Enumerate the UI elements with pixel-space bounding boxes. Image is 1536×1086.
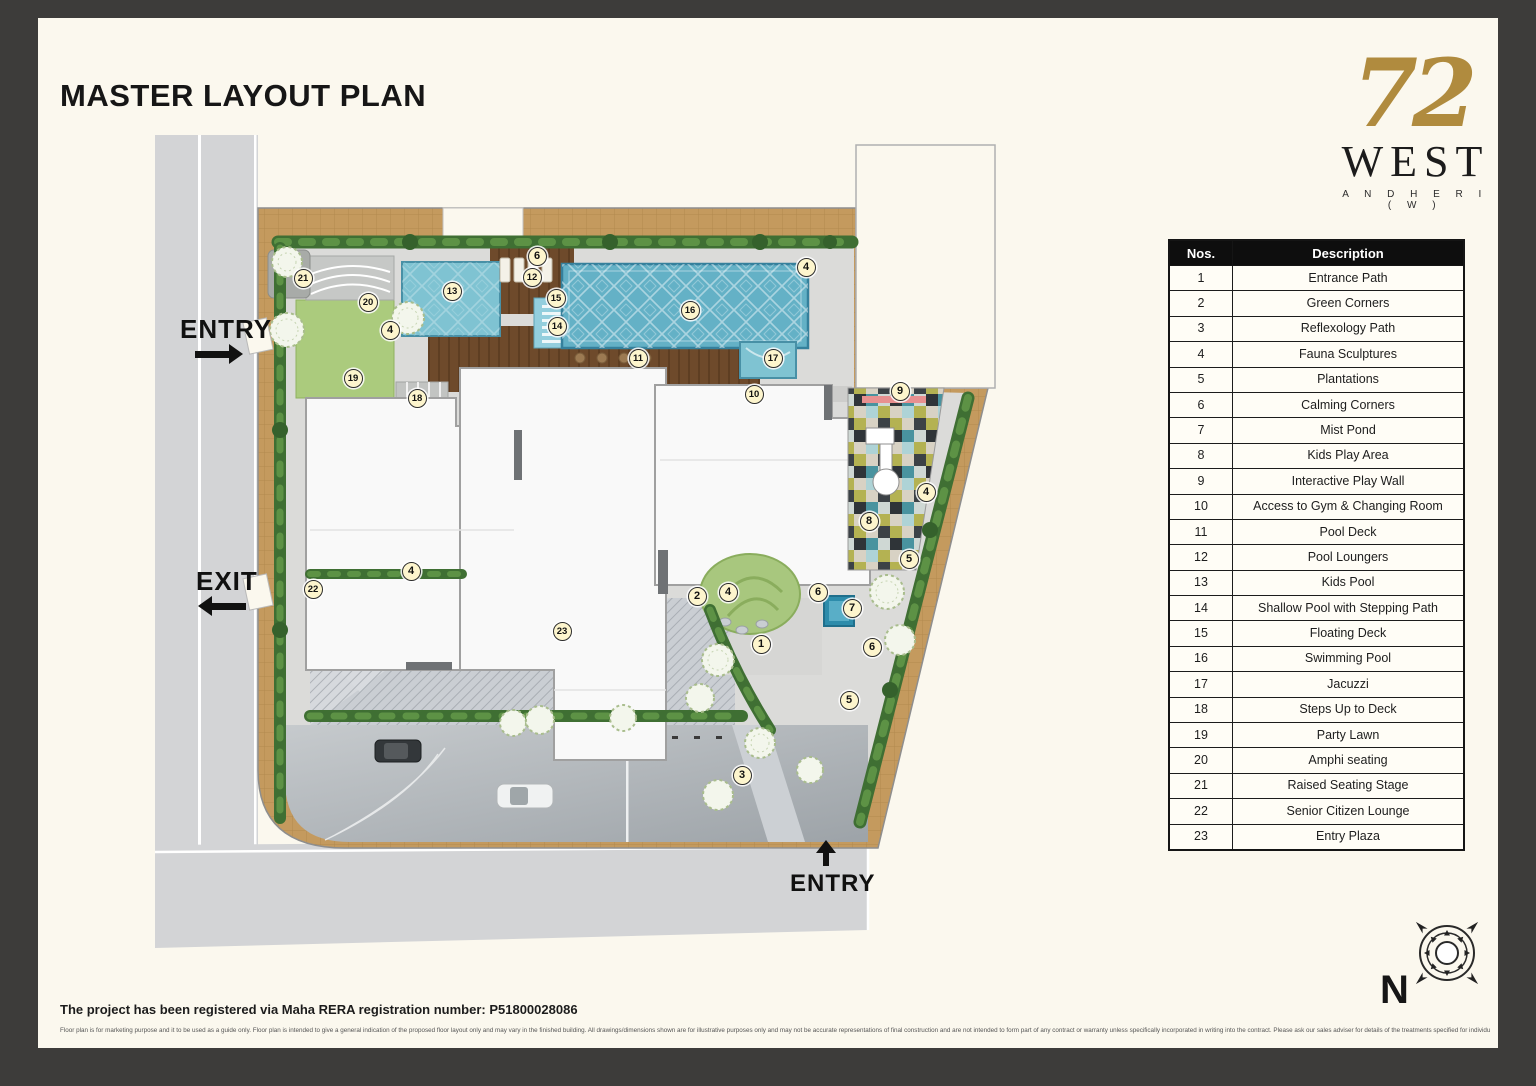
plan-marker-15: 15	[547, 289, 566, 308]
direction-arrow-up-icon	[816, 840, 836, 866]
car-white	[497, 784, 553, 808]
legend-row-no: 9	[1169, 469, 1233, 494]
master-layout-plan: 2120413612151416411171091918485422246723…	[110, 130, 1005, 1010]
plan-marker-23: 23	[553, 622, 572, 641]
legend-row-description: Entry Plaza	[1233, 824, 1465, 850]
plan-marker-4: 4	[797, 258, 816, 277]
legend-row: 8Kids Play Area	[1169, 443, 1464, 468]
legend-row-description: Senior Citizen Lounge	[1233, 799, 1465, 824]
plan-marker-4: 4	[381, 321, 400, 340]
plan-marker-11: 11	[629, 349, 648, 368]
plan-marker-22: 22	[304, 580, 323, 599]
legend-row: 13Kids Pool	[1169, 570, 1464, 595]
legend-row: 14Shallow Pool with Stepping Path	[1169, 596, 1464, 621]
plan-marker-4: 4	[402, 562, 421, 581]
plan-marker-16: 16	[681, 301, 700, 320]
direction-arrow-left-icon	[198, 596, 246, 616]
plan-marker-19: 19	[344, 369, 363, 388]
plan-label-entry: ENTRY	[180, 314, 272, 345]
plan-marker-1: 1	[752, 635, 771, 654]
legend-row-no: 21	[1169, 773, 1233, 798]
legend-row: 19Party Lawn	[1169, 723, 1464, 748]
logo-name: WEST	[1337, 140, 1494, 184]
frame-border-right	[1498, 0, 1536, 1086]
legend-row-description: Swimming Pool	[1233, 646, 1465, 671]
rera-registration-text: The project has been registered via Maha…	[60, 1002, 578, 1017]
legend-row-no: 5	[1169, 367, 1233, 392]
direction-arrow-right-icon	[195, 344, 243, 364]
legend-row-description: Raised Seating Stage	[1233, 773, 1465, 798]
legend-row-no: 22	[1169, 799, 1233, 824]
legend-row: 16Swimming Pool	[1169, 646, 1464, 671]
legend-row-description: Kids Pool	[1233, 570, 1465, 595]
plan-marker-20: 20	[359, 293, 378, 312]
legend-row: 18Steps Up to Deck	[1169, 697, 1464, 722]
legend-header-row: Nos. Description	[1169, 240, 1464, 266]
legend-row: 1Entrance Path	[1169, 266, 1464, 291]
plan-marker-7: 7	[843, 599, 862, 618]
plan-marker-6: 6	[528, 247, 547, 266]
legend-row-description: Pool Loungers	[1233, 545, 1465, 570]
legend-row: 7Mist Pond	[1169, 418, 1464, 443]
legend-row-description: Plantations	[1233, 367, 1465, 392]
plan-marker-14: 14	[548, 317, 567, 336]
legend-row-description: Access to Gym & Changing Room	[1233, 494, 1465, 519]
site-cutout-top	[443, 208, 523, 240]
plan-marker-12: 12	[523, 268, 542, 287]
legend-row-no: 14	[1169, 596, 1233, 621]
legend-row: 4Fauna Sculptures	[1169, 342, 1464, 367]
legend-row: 12Pool Loungers	[1169, 545, 1464, 570]
legend-row-no: 13	[1169, 570, 1233, 595]
legend-row-no: 3	[1169, 316, 1233, 341]
legend-row: 23Entry Plaza	[1169, 824, 1464, 850]
legend-row-description: Fauna Sculptures	[1233, 342, 1465, 367]
legend-row-description: Amphi seating	[1233, 748, 1465, 773]
frame-border-bottom	[0, 1048, 1536, 1086]
car-dark	[375, 740, 421, 762]
legend-row-description: Entrance Path	[1233, 266, 1465, 291]
legend-row-no: 1	[1169, 266, 1233, 291]
legend-table: Nos. Description 1Entrance Path2Green Co…	[1168, 239, 1465, 851]
frame-border-top	[0, 0, 1536, 18]
legend-row: 2Green Corners	[1169, 291, 1464, 316]
brand-logo: 72 WEST A N D H E R I ( W )	[1330, 48, 1494, 211]
plan-marker-5: 5	[900, 550, 919, 569]
legend-row: 22Senior Citizen Lounge	[1169, 799, 1464, 824]
legend-row-no: 8	[1169, 443, 1233, 468]
legend-header-nos: Nos.	[1169, 240, 1233, 266]
legend-row-description: Pool Deck	[1233, 519, 1465, 544]
plan-marker-4: 4	[719, 583, 738, 602]
legend-row: 11Pool Deck	[1169, 519, 1464, 544]
frame-border-left	[0, 0, 38, 1086]
legend-row: 15Floating Deck	[1169, 621, 1464, 646]
disclaimer-text: Floor plan is for marketing purpose and …	[60, 1027, 1490, 1034]
legend-row-description: Green Corners	[1233, 291, 1465, 316]
legend-row: 9Interactive Play Wall	[1169, 469, 1464, 494]
legend-row-no: 11	[1169, 519, 1233, 544]
logo-number: 72	[1330, 48, 1494, 140]
plan-marker-6: 6	[863, 638, 882, 657]
legend-row: 5Plantations	[1169, 367, 1464, 392]
road-bottom	[155, 840, 868, 948]
plan-marker-8: 8	[860, 512, 879, 531]
plan-marker-10: 10	[745, 385, 764, 404]
plan-marker-4: 4	[917, 483, 936, 502]
legend-row-description: Calming Corners	[1233, 392, 1465, 417]
legend-row-description: Jacuzzi	[1233, 672, 1465, 697]
legend-row-no: 20	[1169, 748, 1233, 773]
plan-marker-13: 13	[443, 282, 462, 301]
plan-marker-5: 5	[840, 691, 859, 710]
plan-marker-6: 6	[809, 583, 828, 602]
legend-row-description: Floating Deck	[1233, 621, 1465, 646]
plan-marker-2: 2	[688, 587, 707, 606]
legend-row: 10Access to Gym & Changing Room	[1169, 494, 1464, 519]
legend-row-no: 10	[1169, 494, 1233, 519]
legend-row-description: Kids Play Area	[1233, 443, 1465, 468]
legend-row-no: 15	[1169, 621, 1233, 646]
legend-row-no: 23	[1169, 824, 1233, 850]
legend-row-description: Party Lawn	[1233, 723, 1465, 748]
legend-row-no: 6	[1169, 392, 1233, 417]
plan-marker-9: 9	[891, 382, 910, 401]
logo-location: A N D H E R I ( W )	[1336, 189, 1494, 211]
legend-row-no: 4	[1169, 342, 1233, 367]
compass-north-label: N	[1380, 968, 1409, 1013]
legend-row-description: Shallow Pool with Stepping Path	[1233, 596, 1465, 621]
legend-row-description: Steps Up to Deck	[1233, 697, 1465, 722]
legend-row-description: Reflexology Path	[1233, 316, 1465, 341]
plan-marker-3: 3	[733, 766, 752, 785]
legend-row-no: 12	[1169, 545, 1233, 570]
legend-row: 6Calming Corners	[1169, 392, 1464, 417]
amphi-seating	[306, 256, 394, 300]
legend-row: 21Raised Seating Stage	[1169, 773, 1464, 798]
legend-row-description: Interactive Play Wall	[1233, 469, 1465, 494]
site-cutout-top-right	[856, 145, 995, 388]
road-left	[155, 135, 258, 943]
legend-row-no: 19	[1169, 723, 1233, 748]
legend-row-no: 16	[1169, 646, 1233, 671]
legend-row: 17Jacuzzi	[1169, 672, 1464, 697]
legend-row-no: 17	[1169, 672, 1233, 697]
legend-row-no: 7	[1169, 418, 1233, 443]
plan-label-entry: ENTRY	[790, 870, 875, 898]
legend-row-no: 2	[1169, 291, 1233, 316]
compass-rose-icon	[1402, 908, 1492, 998]
plan-label-exit: EXIT	[196, 566, 258, 597]
legend-row-no: 18	[1169, 697, 1233, 722]
plan-marker-18: 18	[408, 389, 427, 408]
legend-row: 20Amphi seating	[1169, 748, 1464, 773]
plan-marker-17: 17	[764, 349, 783, 368]
page-title: MASTER LAYOUT PLAN	[60, 78, 426, 114]
legend-row: 3Reflexology Path	[1169, 316, 1464, 341]
legend-header-description: Description	[1233, 240, 1465, 266]
legend-row-description: Mist Pond	[1233, 418, 1465, 443]
plan-marker-21: 21	[294, 269, 313, 288]
